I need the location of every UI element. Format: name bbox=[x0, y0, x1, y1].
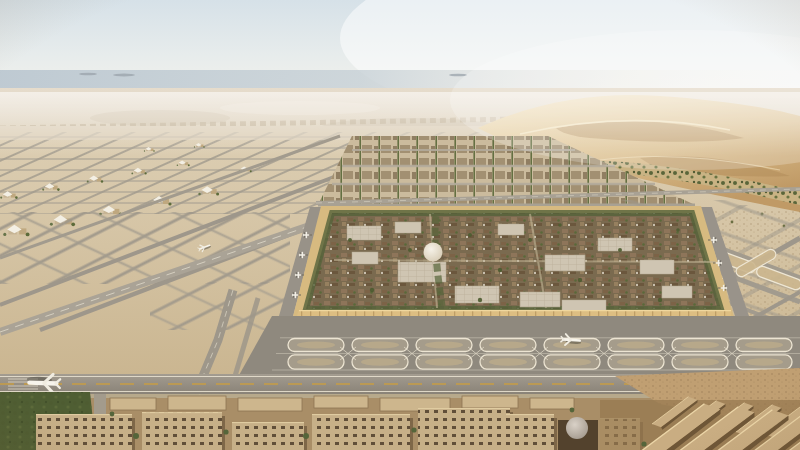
vignette bbox=[0, 0, 800, 450]
render-canvas bbox=[0, 0, 800, 450]
aerial-airport-render bbox=[0, 0, 800, 450]
